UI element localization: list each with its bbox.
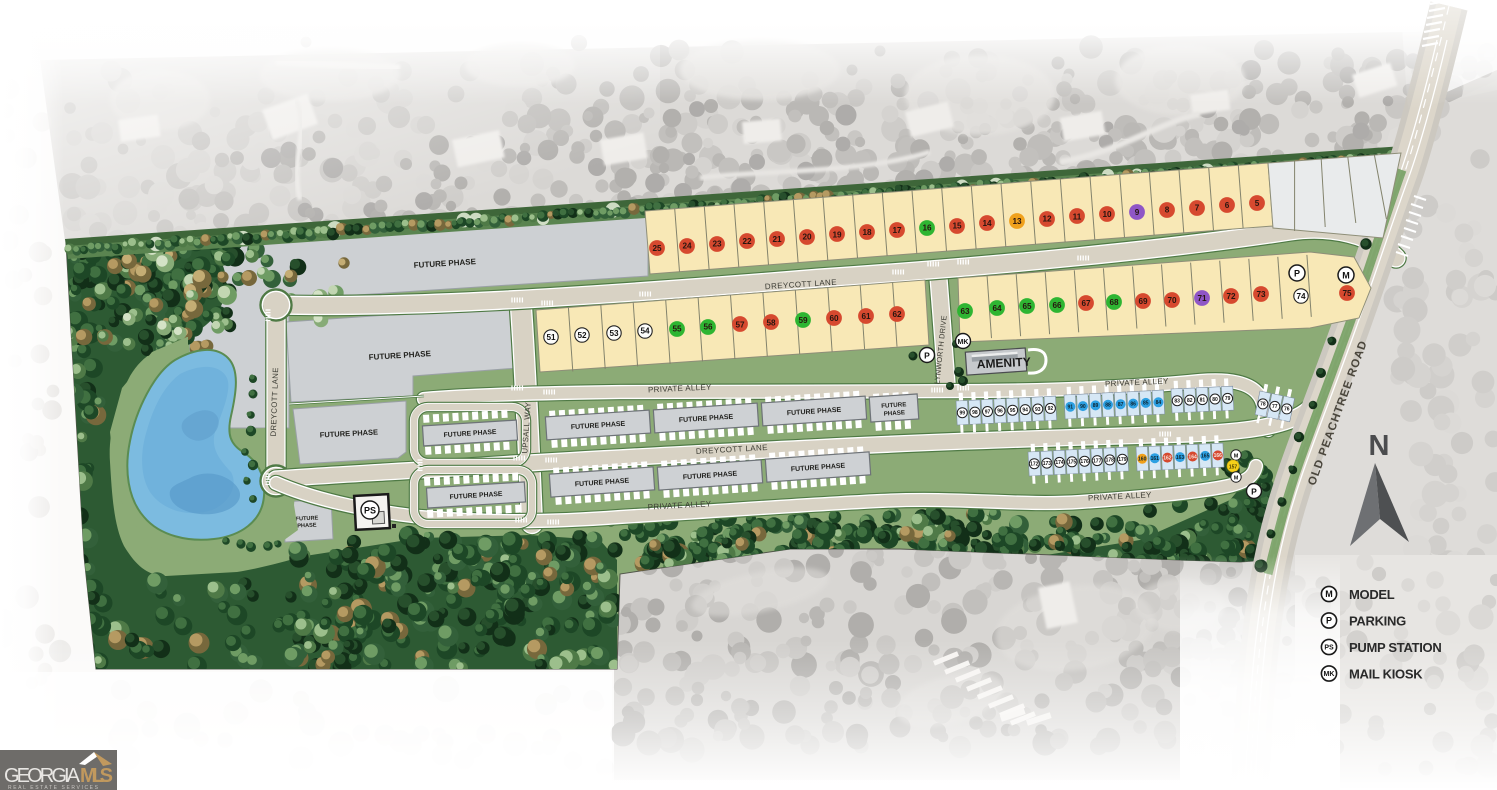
svg-text:13: 13 — [1012, 217, 1022, 226]
svg-text:14: 14 — [982, 219, 992, 228]
svg-text:MK: MK — [958, 339, 969, 346]
svg-text:FUTURE: FUTURE — [295, 515, 318, 522]
svg-text:20: 20 — [802, 233, 812, 242]
svg-text:N: N — [1369, 430, 1390, 462]
svg-text:17: 17 — [892, 226, 902, 235]
svg-text:175: 175 — [1068, 460, 1077, 466]
svg-text:98: 98 — [972, 410, 978, 416]
svg-text:PS: PS — [364, 505, 376, 515]
svg-text:161: 161 — [1151, 456, 1160, 462]
svg-text:97: 97 — [985, 409, 991, 415]
svg-text:55: 55 — [672, 325, 682, 334]
svg-text:PUMP STATION: PUMP STATION — [1349, 640, 1441, 655]
svg-text:MK: MK — [1324, 671, 1335, 678]
svg-text:89: 89 — [1093, 403, 1099, 409]
svg-text:M: M — [1234, 476, 1239, 482]
svg-text:74: 74 — [1296, 292, 1306, 301]
svg-text:77: 77 — [1272, 404, 1278, 410]
svg-text:P: P — [1326, 616, 1332, 626]
svg-text:6: 6 — [1225, 201, 1230, 210]
svg-text:58: 58 — [766, 318, 776, 327]
svg-text:P: P — [1294, 269, 1300, 279]
svg-text:86: 86 — [1130, 401, 1136, 407]
svg-text:63: 63 — [960, 307, 970, 316]
svg-text:93: 93 — [1035, 407, 1041, 413]
svg-text:163: 163 — [1176, 455, 1185, 461]
svg-text:72: 72 — [1226, 292, 1236, 301]
svg-text:65: 65 — [1022, 302, 1032, 311]
svg-text:REAL ESTATE SERVICES: REAL ESTATE SERVICES — [8, 785, 100, 790]
svg-text:164: 164 — [1188, 454, 1197, 460]
svg-text:91: 91 — [1068, 405, 1074, 411]
svg-text:94: 94 — [1022, 407, 1028, 413]
svg-text:23: 23 — [712, 240, 722, 249]
svg-text:19: 19 — [832, 231, 842, 240]
svg-text:9: 9 — [1135, 208, 1140, 217]
svg-text:64: 64 — [992, 304, 1002, 313]
svg-text:60: 60 — [829, 314, 839, 323]
svg-text:174: 174 — [1055, 460, 1064, 466]
svg-text:87: 87 — [1118, 402, 1124, 408]
svg-text:57: 57 — [735, 320, 745, 329]
svg-text:88: 88 — [1105, 403, 1111, 409]
svg-text:7: 7 — [1195, 204, 1200, 213]
svg-text:16: 16 — [922, 224, 932, 233]
svg-text:157: 157 — [1229, 464, 1238, 470]
svg-text:M: M — [1325, 589, 1333, 599]
svg-text:176: 176 — [1080, 459, 1089, 465]
svg-text:166: 166 — [1214, 453, 1223, 459]
svg-text:PS: PS — [1324, 645, 1334, 652]
svg-text:18: 18 — [862, 228, 872, 237]
svg-text:177: 177 — [1093, 458, 1102, 464]
svg-text:76: 76 — [1284, 407, 1290, 413]
svg-text:73: 73 — [1256, 290, 1266, 299]
svg-text:90: 90 — [1080, 404, 1086, 410]
svg-text:165: 165 — [1201, 454, 1210, 460]
svg-text:P: P — [924, 351, 930, 361]
svg-text:79: 79 — [1225, 396, 1231, 402]
svg-text:84: 84 — [1156, 400, 1162, 406]
svg-text:PHASE: PHASE — [297, 522, 317, 529]
svg-text:59: 59 — [798, 316, 808, 325]
svg-text:56: 56 — [703, 323, 713, 332]
svg-text:71: 71 — [1197, 294, 1207, 303]
svg-text:172: 172 — [1030, 462, 1039, 468]
svg-text:96: 96 — [997, 409, 1003, 415]
svg-text:5: 5 — [1255, 199, 1260, 208]
svg-text:11: 11 — [1073, 213, 1082, 222]
svg-text:52: 52 — [577, 331, 587, 340]
svg-text:160: 160 — [1138, 457, 1147, 463]
svg-text:68: 68 — [1109, 298, 1119, 307]
svg-text:51: 51 — [546, 333, 556, 342]
svg-text:15: 15 — [952, 222, 962, 231]
svg-text:78: 78 — [1260, 402, 1266, 408]
svg-text:MAIL KIOSK: MAIL KIOSK — [1349, 666, 1423, 681]
svg-text:PHASE: PHASE — [883, 409, 905, 417]
svg-text:25: 25 — [652, 244, 662, 253]
svg-text:PARKING: PARKING — [1349, 613, 1406, 628]
svg-text:70: 70 — [1167, 296, 1177, 305]
svg-text:61: 61 — [861, 312, 871, 321]
svg-text:66: 66 — [1052, 301, 1062, 310]
svg-text:22: 22 — [742, 237, 752, 246]
svg-text:10: 10 — [1102, 210, 1112, 219]
svg-text:21: 21 — [772, 235, 782, 244]
svg-text:MODEL: MODEL — [1349, 587, 1395, 602]
svg-text:83: 83 — [1174, 399, 1180, 405]
svg-text:92: 92 — [1048, 406, 1054, 412]
svg-text:69: 69 — [1138, 297, 1148, 306]
svg-text:162: 162 — [1163, 455, 1172, 461]
svg-text:178: 178 — [1106, 458, 1115, 464]
svg-text:80: 80 — [1212, 397, 1218, 403]
svg-text:54: 54 — [640, 327, 650, 336]
svg-text:P: P — [1251, 487, 1257, 497]
svg-text:95: 95 — [1010, 408, 1016, 414]
svg-text:173: 173 — [1043, 461, 1052, 467]
svg-text:AMENITY: AMENITY — [976, 355, 1031, 372]
svg-text:GEORGIA: GEORGIA — [4, 765, 81, 787]
svg-text:81: 81 — [1200, 397, 1206, 403]
svg-text:179: 179 — [1118, 457, 1127, 463]
svg-text:24: 24 — [682, 242, 692, 251]
svg-text:53: 53 — [609, 329, 619, 338]
svg-text:67: 67 — [1081, 299, 1091, 308]
svg-text:M: M — [1342, 271, 1350, 281]
svg-text:MLS: MLS — [80, 765, 113, 787]
svg-text:M: M — [1234, 454, 1239, 460]
svg-text:99: 99 — [960, 411, 966, 417]
svg-text:12: 12 — [1042, 215, 1052, 224]
svg-text:85: 85 — [1143, 401, 1149, 407]
svg-text:8: 8 — [1165, 206, 1170, 215]
svg-text:82: 82 — [1187, 398, 1193, 404]
svg-text:62: 62 — [892, 310, 902, 319]
svg-text:75: 75 — [1342, 289, 1352, 298]
